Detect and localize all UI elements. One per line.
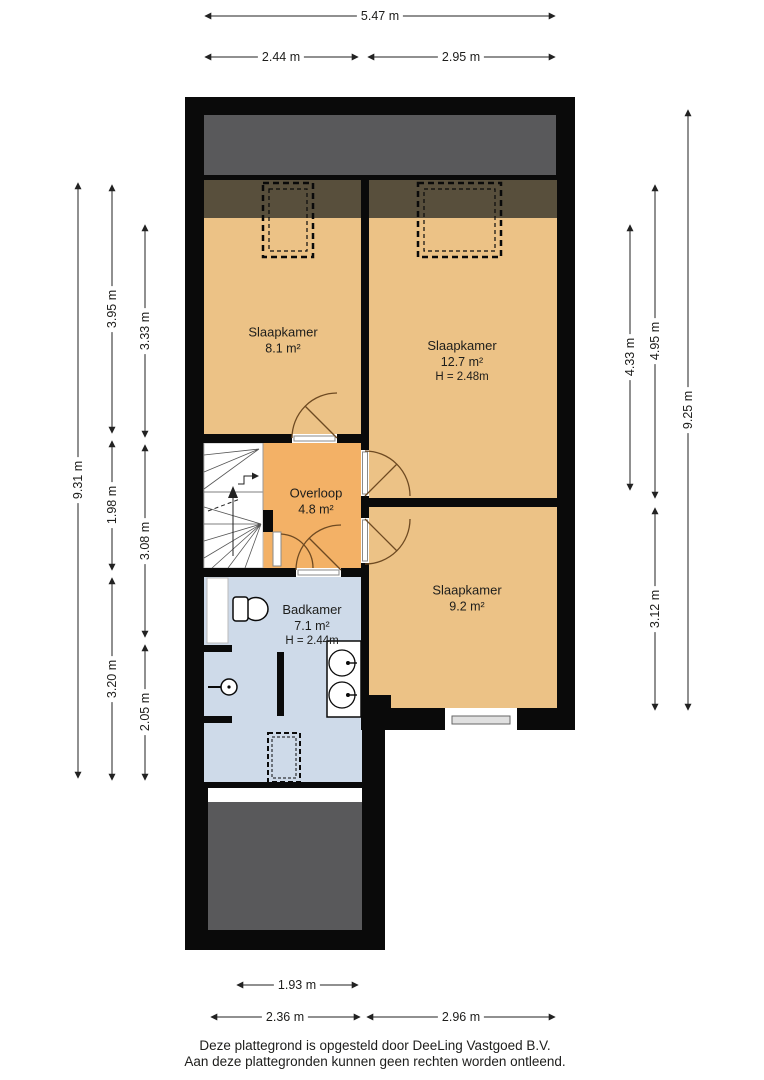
room-name: Overloop xyxy=(290,485,343,502)
dim-label-left-inner-2: 3.08 m xyxy=(138,518,152,564)
floor-plan-canvas: 5.47 m 2.44 m 2.95 m 9.31 m 3.95 m 1.98 … xyxy=(0,0,764,1080)
dim-label-left-total: 9.31 m xyxy=(71,457,85,503)
roof-bottom xyxy=(208,802,362,930)
stairs-door-leaf xyxy=(273,532,281,566)
room-area: 12.7 m² xyxy=(427,354,496,370)
room-area: 4.8 m² xyxy=(290,502,343,518)
room-name: Slaapkamer xyxy=(432,582,501,599)
room-area: 9.2 m² xyxy=(432,599,501,615)
dim-label-top-left: 2.44 m xyxy=(258,50,304,64)
roof-top xyxy=(204,115,556,175)
dim-label-right-mid-2: 3.12 m xyxy=(648,586,662,632)
under-roof-left xyxy=(204,180,361,218)
room-height: H = 2.44m xyxy=(282,634,341,649)
dim-label-left-inner-1: 3.33 m xyxy=(138,308,152,354)
bathroom-closet xyxy=(207,578,228,643)
dim-label-top-right: 2.95 m xyxy=(438,50,484,64)
room-label-overloop: Overloop 4.8 m² xyxy=(290,485,343,518)
room-name: Slaapkamer xyxy=(248,324,317,341)
dim-label-left-inner-3: 2.05 m xyxy=(138,689,152,735)
floor-plan-drawing xyxy=(0,0,764,1080)
dim-label-bottom-left: 2.36 m xyxy=(262,1010,308,1024)
dim-label-bottom-inner: 1.93 m xyxy=(274,978,320,992)
window-slaapkamer-3 xyxy=(445,708,517,730)
room-name: Badkamer xyxy=(282,601,341,618)
room-label-slaapkamer-1: Slaapkamer 8.1 m² xyxy=(248,324,317,357)
toilet-icon xyxy=(233,597,268,621)
dim-label-top-total: 5.47 m xyxy=(357,9,403,23)
room-label-badkamer: Badkamer 7.1 m² H = 2.44m xyxy=(282,601,341,649)
room-label-slaapkamer-3: Slaapkamer 9.2 m² xyxy=(432,582,501,615)
footer-disclaimer-line1: Deze plattegrond is opgesteld door DeeLi… xyxy=(199,1038,550,1054)
room-area: 7.1 m² xyxy=(282,618,341,634)
dim-label-bottom-right: 2.96 m xyxy=(438,1010,484,1024)
dim-label-right-inner-1: 4.33 m xyxy=(623,334,637,380)
dim-label-left-mid-3: 3.20 m xyxy=(105,656,119,702)
room-height: H = 2.48m xyxy=(427,370,496,385)
room-area: 8.1 m² xyxy=(248,341,317,357)
dim-label-left-mid-2: 1.98 m xyxy=(105,482,119,528)
dim-label-right-mid-1: 4.95 m xyxy=(648,318,662,364)
dim-label-left-mid-1: 3.95 m xyxy=(105,286,119,332)
room-name: Slaapkamer xyxy=(427,337,496,354)
roof-gap-band xyxy=(208,788,362,802)
footer-disclaimer-line2: Aan deze plattegronden kunnen geen recht… xyxy=(184,1054,565,1070)
under-roof-right xyxy=(369,180,557,218)
double-sink-icon xyxy=(327,641,361,717)
room-label-slaapkamer-2: Slaapkamer 12.7 m² H = 2.48m xyxy=(427,337,496,385)
dim-label-right-total: 9.25 m xyxy=(681,387,695,433)
